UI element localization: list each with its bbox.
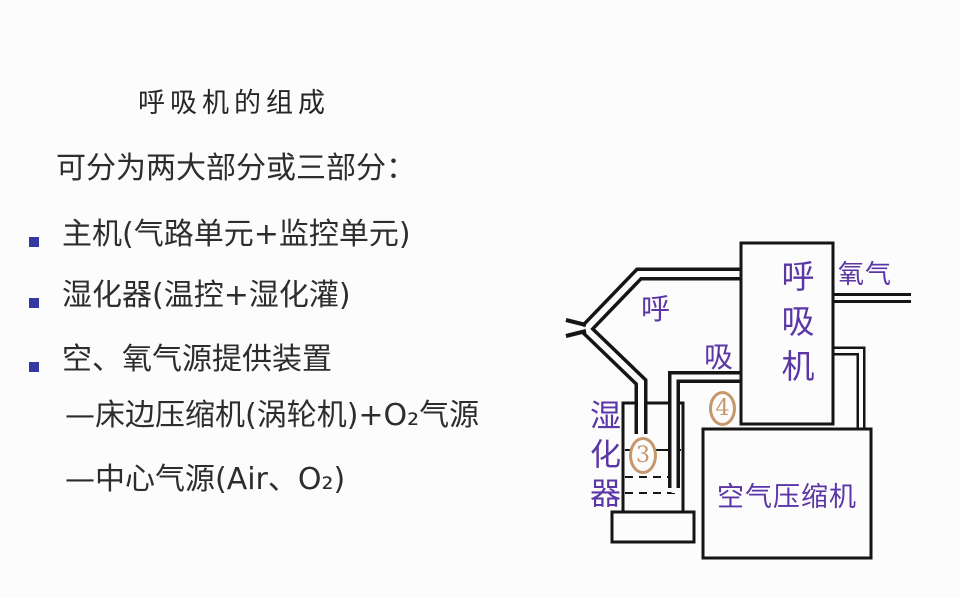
bullet-square-icon — [29, 362, 39, 372]
humidifier-label: 湿化器 — [580, 399, 625, 516]
compressor-label: 空气压缩机 — [703, 475, 871, 514]
slide: 呼吸机的组成 可分为两大部分或三部分： 主机(气路单元+监控单元) 湿化器(温控… — [0, 0, 960, 598]
ventilator-label: 呼吸机 — [771, 259, 819, 394]
circled-number-3: 3 — [629, 437, 657, 474]
inhale-tube-label: 吸 — [704, 334, 733, 376]
bullet-item: 空、氧气源提供装置 — [29, 342, 332, 378]
humidifier-base — [612, 512, 694, 542]
intro-text: 可分为两大部分或三部分： — [56, 151, 416, 187]
bullet-item: 湿化器(温控+湿化灌) — [29, 278, 351, 314]
bullet-label: 空、氧气源提供装置 — [62, 342, 332, 378]
sub-item: —中心气源(Air、O₂) — [65, 462, 345, 498]
page-title: 呼吸机的组成 — [138, 88, 330, 120]
sub-item: —床边压缩机(涡轮机)+O₂气源 — [65, 398, 479, 434]
exhale-tube-label: 呼 — [641, 286, 670, 328]
bullet-item: 主机(气路单元+监控单元) — [29, 217, 411, 253]
patient-port-line — [566, 331, 586, 336]
bullet-label: 主机(气路单元+监控单元) — [62, 217, 411, 253]
patient-port-line — [566, 320, 586, 325]
bullet-label: 湿化器(温控+湿化灌) — [62, 278, 351, 314]
circled-number-4: 4 — [709, 391, 736, 426]
inhale-tube — [674, 377, 742, 488]
bullet-square-icon — [29, 298, 39, 308]
ventilator-compressor-pipe — [833, 351, 861, 430]
circled-number-4-value: 4 — [716, 396, 730, 421]
bullet-square-icon — [29, 237, 39, 247]
oxygen-label: 氧气 — [838, 254, 892, 291]
circled-number-3-value: 3 — [636, 443, 650, 468]
